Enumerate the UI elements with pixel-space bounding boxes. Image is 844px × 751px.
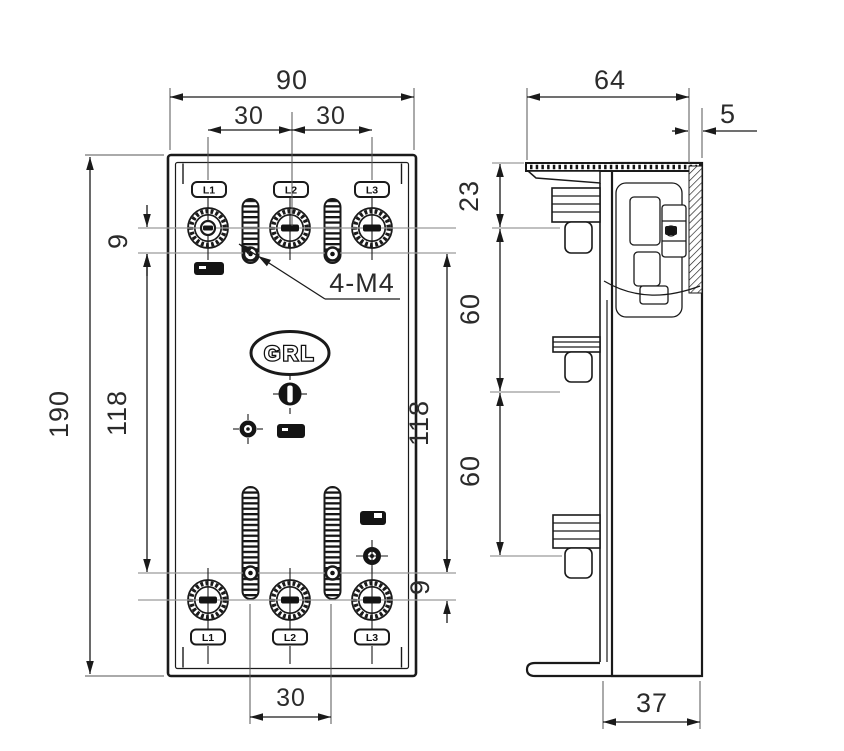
dim-offset-bottom: 9 [405, 579, 435, 595]
dim-base-depth: 37 [636, 688, 668, 718]
dim-pitch-upper: 60 [455, 293, 485, 325]
dim-overall-height: 190 [44, 390, 74, 438]
dim-pitch-lower: 60 [455, 455, 485, 487]
label-top-l2: L2 [285, 185, 297, 197]
label-bottom-l2: L2 [284, 632, 296, 644]
brand-logo: GRL [251, 332, 329, 375]
brand-logo-text: GRL [264, 343, 316, 366]
hatched-panel-band [689, 166, 702, 293]
side-terminal-middle [553, 337, 600, 382]
label-bottom-l3: L3 [366, 632, 378, 644]
side-terminal-top [552, 188, 600, 253]
dim-pitch-left: 30 [234, 102, 264, 130]
label-bottom-l1: L1 [202, 632, 214, 644]
dim-overall-width: 90 [276, 65, 308, 95]
drawing-canvas: L1 L2 L3 L1 L2 L3 GRL [0, 0, 844, 751]
dim-bottom-pitch: 30 [276, 684, 306, 712]
side-view [526, 163, 702, 676]
adjustment-strip-bottom-left [243, 487, 259, 599]
dim-offset-top: 9 [103, 233, 133, 249]
technical-drawing: L1 L2 L3 L1 L2 L3 GRL [0, 0, 844, 751]
dim-top-flange: 5 [720, 99, 736, 129]
adjustment-strip-bottom-right [325, 487, 341, 599]
dim-pitch-right: 30 [316, 102, 346, 130]
label-top-l1: L1 [203, 185, 215, 197]
label-top-l3: L3 [366, 185, 378, 197]
dim-overall-depth: 64 [594, 65, 626, 95]
dim-top-to-terminal: 23 [454, 180, 484, 212]
thread-note-text: 4-M4 [329, 268, 395, 298]
dim-span-right: 118 [404, 400, 434, 446]
dim-span-left: 118 [102, 390, 132, 436]
side-terminal-bottom [553, 515, 600, 578]
cap-wedge [528, 171, 600, 183]
